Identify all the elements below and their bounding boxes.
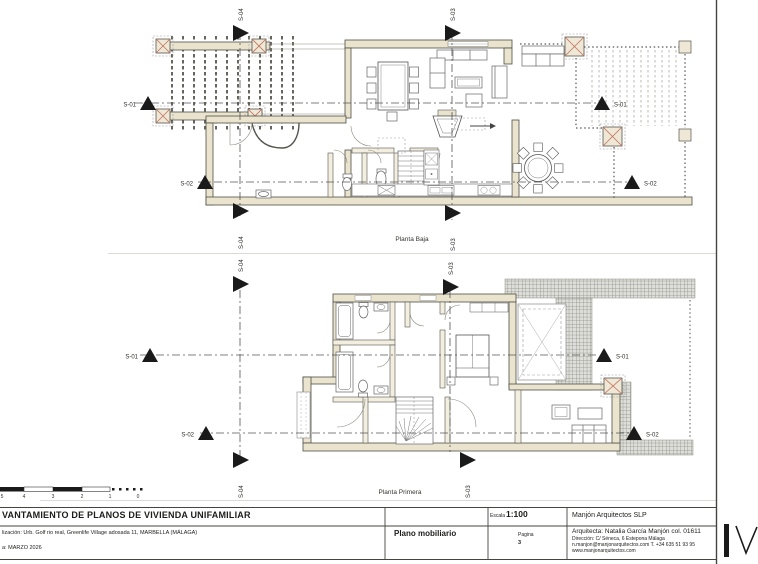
- side-window: [297, 392, 310, 438]
- first-floor-label: Planta Primera: [379, 489, 422, 496]
- section-label: S-03: [451, 8, 457, 21]
- chair: [367, 67, 376, 77]
- section-label: S-01: [125, 355, 138, 361]
- nightstand: [490, 377, 498, 385]
- page-number: 3: [518, 540, 521, 546]
- chair: [410, 99, 419, 109]
- project-date: a: MARZO 2026: [2, 545, 42, 551]
- section-label: S-04: [239, 485, 245, 498]
- chair: [547, 147, 559, 159]
- direction-arrow: [490, 123, 496, 129]
- section-label: S-04: [239, 8, 245, 21]
- architect-website: www.manjonarquitectos.com: [572, 549, 636, 555]
- section-label: S-02: [646, 433, 659, 439]
- section-label: S-02: [181, 433, 194, 439]
- plan-sheet: S-01 S-01 S-02 S-02 S-04 S-04 S-03 S-03 …: [0, 0, 758, 564]
- scale-tick: 2: [81, 494, 84, 500]
- planta-baja-plan: S-01 S-01 S-02 S-02 S-04 S-04 S-03 S-03 …: [123, 8, 692, 251]
- round-dining-set: [513, 143, 563, 193]
- chair: [367, 83, 376, 93]
- bathroom-fixtures: [336, 303, 388, 398]
- scale-tick: 3: [52, 494, 55, 500]
- section-label: S-02: [644, 182, 657, 188]
- section-label: S-04: [239, 236, 245, 249]
- firm-logo: [724, 524, 757, 557]
- section-label: S-03: [451, 238, 457, 251]
- chair: [410, 67, 419, 77]
- dining-set: [367, 62, 419, 121]
- staircase-ground: [398, 151, 424, 189]
- sofa: [572, 425, 606, 443]
- toilet: [359, 306, 368, 318]
- floorplan-drawing: S-01 S-01 S-02 S-02 S-04 S-04 S-03 S-03 …: [0, 0, 758, 564]
- toilet: [343, 178, 352, 191]
- chair: [513, 164, 522, 173]
- section-marker-icon: [445, 25, 461, 41]
- section-label: S-03: [466, 485, 472, 498]
- scale-value: 1:100: [506, 510, 528, 519]
- section-marker-icon: [233, 276, 249, 292]
- tv-unit: [492, 66, 507, 98]
- terrace-columns: [562, 34, 691, 149]
- firm-name: Manjón Arquitectos SLP: [572, 512, 647, 520]
- staircase-first: [396, 397, 433, 444]
- drawing-name: Plano mobiliario: [394, 530, 456, 539]
- kitchen-island: [424, 150, 439, 185]
- outdoor-sofa: [522, 46, 564, 66]
- scale-label: Escala: [490, 514, 505, 520]
- section-label: S-03: [449, 262, 455, 275]
- terrace-ground: [513, 34, 691, 198]
- architect-name: Arquitecta: Natalia García Manjón col. 0…: [572, 528, 701, 535]
- wardrobe: [470, 303, 508, 312]
- living-room-set: [430, 50, 507, 107]
- section-label: S-01: [123, 103, 136, 109]
- section-marker-icon: [443, 279, 459, 295]
- trellis: [592, 50, 676, 126]
- section-label: S-02: [180, 182, 193, 188]
- graphic-scale-bar: 5 4 3 2 1 0: [0, 487, 143, 500]
- page-label: Pagina: [518, 533, 534, 539]
- chair: [534, 185, 543, 194]
- bedroom-set: [447, 303, 508, 385]
- scale-tick: 0: [137, 494, 140, 500]
- section-marker-icon: [594, 96, 610, 110]
- scale-tick: 5: [1, 494, 4, 500]
- section-label: S-01: [614, 103, 627, 109]
- chair: [410, 83, 419, 93]
- scale-tick: 1: [109, 494, 112, 500]
- upper-terrace-set: [552, 405, 606, 443]
- chair: [367, 99, 376, 109]
- terrace-column-first: [601, 375, 625, 397]
- planta-primera-plan: S-01 S-01 S-02 S-02 S-04 S-04 S-03 S-03 …: [125, 259, 695, 498]
- chair: [555, 164, 564, 173]
- fireplace: [433, 110, 496, 137]
- ground-floor-label: Planta Baja: [395, 236, 429, 243]
- chair: [547, 177, 559, 189]
- section-marker-icon: [233, 25, 249, 41]
- section-marker-icon: [445, 205, 461, 221]
- section-marker-icon: [460, 452, 476, 468]
- section-marker-icon: [596, 348, 612, 362]
- project-location: lización: Urb. Golf rio real, Greenlife …: [2, 530, 197, 536]
- chair: [534, 143, 543, 152]
- armchair: [466, 94, 482, 107]
- kitchen-counter: [352, 138, 512, 196]
- rooflight: [518, 304, 566, 380]
- nightstand: [447, 377, 455, 385]
- sheet-title: VANTAMIENTO DE PLANOS DE VIVIENDA UNIFAM…: [2, 511, 251, 521]
- side-table: [578, 408, 602, 419]
- scale-tick: 4: [23, 494, 26, 500]
- section-marker-icon: [233, 452, 249, 468]
- chair: [387, 112, 397, 121]
- toilet: [359, 380, 368, 392]
- section-label: S-01: [616, 355, 629, 361]
- section-label: S-04: [239, 259, 245, 272]
